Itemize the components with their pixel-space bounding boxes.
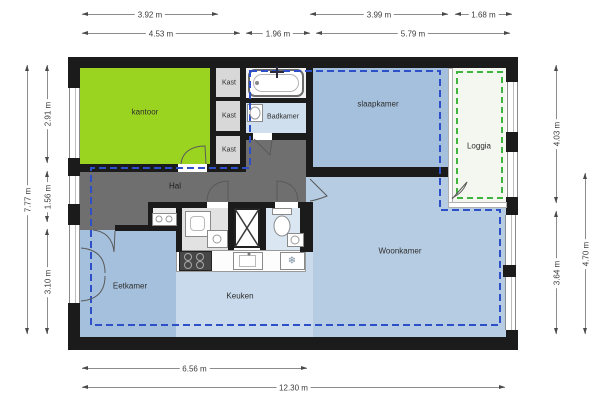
dim-height-woon-outer: 4.70 m [585, 173, 586, 334]
room-label-eetkamer: Eetkamer [113, 282, 147, 291]
dim-height-total: 7.77 m [27, 65, 28, 334]
room-label-kast-2: Kast [222, 113, 236, 120]
wall [68, 158, 80, 176]
wall [68, 57, 518, 68]
washing-machine-door [190, 216, 205, 231]
room-label-woonkamer: Woonkamer [379, 247, 422, 256]
wall [506, 330, 518, 350]
room-label-kantoor: kantoor [132, 108, 159, 117]
bathroom-sink [247, 104, 263, 122]
room-slaapkamer[interactable] [313, 68, 448, 167]
wall [80, 164, 178, 172]
dim-height-kantoor: 2.91 m [47, 65, 48, 163]
window [505, 215, 516, 265]
wall [260, 202, 266, 250]
loggia-wall [448, 68, 453, 207]
wall [68, 204, 80, 225]
loggia-wall [448, 202, 507, 208]
dim-width-bottom-left: 6.56 m [82, 368, 307, 369]
room-label-kast-3: Kast [222, 147, 236, 154]
shaft-box [234, 208, 260, 248]
wall [246, 98, 306, 103]
window [505, 277, 516, 330]
dim-width-kantoor-kast: 4.53 m [82, 33, 240, 34]
dim-width-loggia: 1.68 m [455, 14, 512, 15]
floor-plan: ❄ kantoor Kas [0, 0, 600, 400]
dim-width-kantoor: 3.92 m [82, 14, 218, 15]
wall [506, 132, 518, 152]
window-balcony-doors [69, 225, 80, 303]
dim-width-woon-right: 5.79 m [316, 33, 510, 34]
room-hal[interactable] [80, 172, 306, 202]
room-label-slaapkamer: slaapkamer [357, 100, 398, 109]
dim-height-hal: 1.56 m [47, 171, 48, 222]
wall [216, 97, 240, 101]
wall [240, 68, 246, 172]
wall [68, 57, 80, 88]
stove [179, 251, 212, 271]
wall [246, 133, 253, 140]
wall [503, 265, 516, 277]
wall [176, 202, 182, 252]
room-loggia[interactable] [452, 68, 506, 202]
dim-width-badkamer: 1.96 m [246, 33, 310, 34]
wall [298, 202, 306, 208]
wall [506, 57, 518, 82]
dim-width-total: 12.30 m [82, 387, 505, 388]
dim-height-eetkamer: 3.10 m [47, 229, 48, 334]
window [507, 82, 518, 132]
dim-height-slaap-loggia: 4.03 m [556, 65, 557, 203]
wall [306, 167, 448, 177]
tiny-room-sink [152, 213, 177, 226]
wc-sink [287, 233, 304, 247]
wall [68, 337, 518, 350]
room-label-badkamer: Badkamer [267, 114, 299, 121]
water-heater [207, 230, 228, 248]
room-label-hal: Hal [169, 182, 181, 191]
dim-width-slaapkamer: 3.99 m [310, 14, 448, 15]
wall [210, 68, 216, 172]
wall [506, 197, 518, 215]
wall [216, 131, 240, 136]
bathtub [248, 69, 304, 97]
window [69, 88, 80, 158]
wall [68, 303, 80, 350]
window [507, 152, 518, 197]
kitchen-sink-basin [239, 255, 256, 267]
wall [306, 57, 313, 177]
toilet-tank [272, 208, 292, 215]
wall [207, 164, 246, 172]
room-label-kast-1: Kast [222, 80, 236, 87]
snowflake-icon: ❄ [288, 256, 296, 267]
room-label-keuken: Keuken [226, 292, 253, 301]
dim-height-woonkamer: 3.64 m [556, 211, 557, 334]
window [69, 176, 80, 204]
room-label-loggia: Loggia [467, 142, 491, 151]
